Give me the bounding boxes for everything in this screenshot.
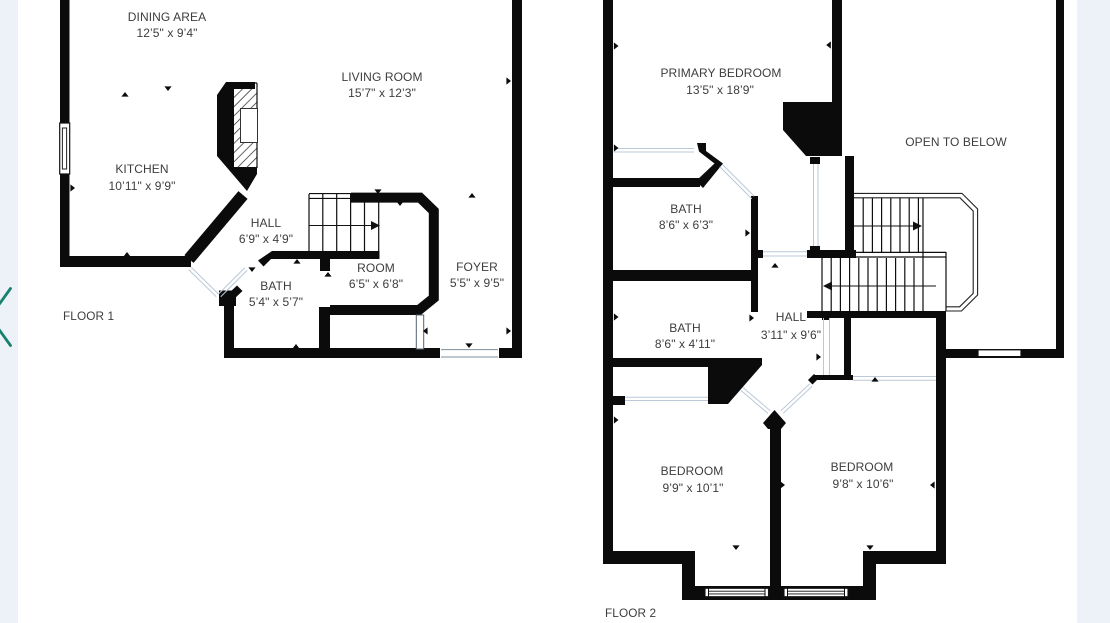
svg-text:BATH: BATH [260, 279, 292, 293]
svg-text:9’8" x 10’6": 9’8" x 10’6" [832, 477, 893, 491]
svg-text:DINING AREA: DINING AREA [128, 10, 206, 24]
svg-text:3’11" x 9’6": 3’11" x 9’6" [761, 328, 821, 342]
svg-text:LIVING ROOM: LIVING ROOM [341, 70, 422, 84]
svg-text:6’5" x 6’8": 6’5" x 6’8" [349, 277, 403, 291]
svg-text:BATH: BATH [669, 321, 701, 335]
svg-text:OPEN TO BELOW: OPEN TO BELOW [905, 135, 1007, 149]
svg-text:6’9" x 4’9": 6’9" x 4’9" [239, 232, 293, 246]
svg-text:ROOM: ROOM [357, 261, 395, 275]
svg-text:HALL: HALL [776, 310, 807, 324]
svg-text:12’5" x 9’4": 12’5" x 9’4" [136, 26, 197, 40]
svg-text:FLOOR 1: FLOOR 1 [63, 309, 114, 323]
svg-text:BEDROOM: BEDROOM [661, 464, 724, 478]
svg-text:13’5" x 18’9": 13’5" x 18’9" [686, 83, 754, 97]
svg-text:BEDROOM: BEDROOM [831, 460, 894, 474]
svg-text:FOYER: FOYER [456, 260, 498, 274]
svg-text:PRIMARY BEDROOM: PRIMARY BEDROOM [660, 66, 781, 80]
svg-text:5’5" x 9’5": 5’5" x 9’5" [450, 276, 504, 290]
svg-text:FLOOR 2: FLOOR 2 [605, 606, 656, 620]
svg-text:HALL: HALL [251, 216, 282, 230]
svg-text:5’4" x 5’7": 5’4" x 5’7" [249, 295, 303, 309]
svg-text:10’11" x 9’9": 10’11" x 9’9" [109, 179, 176, 193]
svg-text:KITCHEN: KITCHEN [115, 162, 168, 176]
svg-text:15’7" x 12’3": 15’7" x 12’3" [348, 86, 416, 100]
svg-text:8’6" x 4’11": 8’6" x 4’11" [655, 337, 715, 351]
svg-text:BATH: BATH [670, 202, 702, 216]
svg-text:8’6" x 6’3": 8’6" x 6’3" [659, 218, 713, 232]
svg-text:9’9" x 10’1": 9’9" x 10’1" [662, 481, 723, 495]
